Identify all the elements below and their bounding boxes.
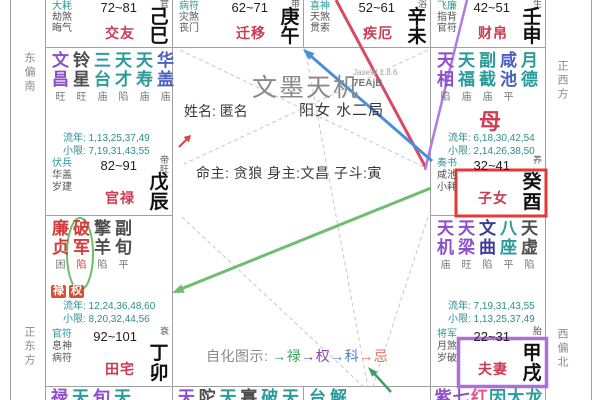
name-row: 姓名: 匿名	[184, 101, 248, 121]
minor-gods: 病符灾煞丧门	[179, 1, 199, 34]
star-name: 红	[470, 387, 488, 400]
palace-name: 疾厄	[363, 23, 393, 43]
partial-palace-col1[interactable]: 天陀天寡破天	[176, 387, 301, 400]
minor-gods: 大耗劫煞晦气	[52, 1, 72, 34]
name-label: 姓名:	[184, 103, 216, 119]
star-brightness: 陷	[71, 260, 92, 272]
age-range: 22~31	[473, 329, 510, 344]
star-天: 天	[218, 387, 239, 400]
main-stars-row: 天 机庙天 梁旺文 曲陷八 座平天 虚陷	[435, 219, 540, 272]
star-name: 副 截	[477, 51, 498, 89]
god-小耗: 小耗	[437, 182, 457, 194]
star-name: 七	[452, 387, 470, 400]
star-解: 解	[328, 387, 349, 400]
star-铃星: 铃 星旺	[71, 51, 92, 104]
sihua-badge-权: 权	[69, 285, 84, 298]
star-name: 破 军	[71, 219, 92, 257]
liunian-years: 流年: 1,13,25,37,49	[63, 132, 150, 145]
god-华盖: 华盖	[52, 170, 72, 182]
star-brightness	[519, 92, 540, 104]
palace-footer: 将军月煞岁破22~31夫妻胎甲 戌	[431, 327, 544, 385]
partial-stars-row: 台解	[307, 387, 428, 400]
star-name: 天 机	[435, 219, 456, 257]
star-name: 廉 贞	[50, 219, 71, 257]
year-limit-numbers: 流年: 6,18,30,42,54小限: 2,14,26,38,50	[448, 132, 535, 158]
star-副截: 副 截庙	[477, 51, 498, 104]
star-龙: 龙	[525, 387, 543, 400]
god-贯索: 贯索	[310, 23, 330, 34]
star-天寿: 天 寿庙	[134, 51, 155, 104]
star-name: 擎 羊	[92, 219, 113, 257]
palace-name: 田宅	[105, 359, 135, 379]
star-副旬: 副 旬平	[113, 219, 134, 272]
star-name: 因	[489, 387, 507, 400]
star-三台: 三 台庙	[92, 51, 113, 104]
god-岁破: 岁破	[437, 353, 457, 365]
palace-cell-fuqi[interactable]: 天 机庙天 梁旺文 曲陷八 座平天 虚陷流年: 7,19,31,43,55小限:…	[431, 216, 544, 385]
partial-stars-row: 禄天旬天	[49, 387, 170, 400]
partial-stars-row: 天陀天寡破天	[176, 387, 301, 400]
star-破军: 破 军陷	[71, 219, 92, 272]
god-病符: 病符	[179, 1, 199, 12]
small-red-line	[179, 138, 188, 147]
star-brightness: 旺	[71, 92, 92, 104]
star-月德: 月 德	[519, 51, 540, 104]
liunian-years: 流年: 6,18,30,42,54	[448, 132, 535, 145]
star-name: 华 盖	[155, 51, 176, 89]
partial-palace-col3[interactable]: 紫七红因大龙	[434, 387, 543, 400]
palace-footer: 官符息神病符92~101田宅衰丁 卯	[46, 327, 171, 385]
star-brightness: 陷	[477, 260, 498, 272]
star-name: 天	[176, 387, 197, 400]
palace-cell-guanlu[interactable]: 文 昌旺铃 星旺三 台庙天 才陷天 寿庙华 盖庙流年: 1,13,25,37,4…	[46, 48, 171, 214]
star-天机: 天 机庙	[435, 219, 456, 272]
star-文曲: 文 曲陷	[477, 219, 498, 272]
star-brightness: 庙	[134, 92, 155, 104]
green-arrowhead	[172, 284, 185, 293]
palace-cell-tianzhai[interactable]: 廉 贞困破 军陷擎 羊陷副 旬平禄权流年: 12,24,36,48,60小限: …	[46, 216, 171, 385]
main-stars-row: 文 昌旺铃 星旺三 台庙天 才陷天 寿庙华 盖庙	[50, 51, 176, 104]
stem-branch: 甲 戌	[522, 344, 542, 384]
star-name: 八 座	[498, 219, 519, 257]
minor-gods: 官符息神病符	[52, 329, 72, 365]
star-name: 文 曲	[477, 219, 498, 257]
star-天: 天	[70, 387, 91, 400]
star-brightness: 陷	[113, 92, 134, 104]
star-brightness: 陷	[519, 260, 540, 272]
partial-palace-col2[interactable]: 台解	[307, 387, 428, 400]
minor-gods: 将军月煞岁破	[437, 329, 457, 365]
age-range: 92~101	[93, 329, 137, 344]
star-name: 天 才	[113, 51, 134, 89]
star-name: 大	[507, 387, 525, 400]
star-华盖: 华 盖庙	[155, 51, 176, 104]
sihua-item: →权	[301, 348, 330, 364]
god-病符: 病符	[52, 353, 72, 365]
star-天福: 天 福庙	[456, 51, 477, 104]
sihua-legend: 自化图示: →禄→权→科→忌	[206, 346, 388, 366]
star-name: 咸 池	[498, 51, 519, 89]
star-name: 禄	[49, 387, 70, 400]
god-月煞: 月煞	[437, 341, 457, 353]
age-range: 42~51	[473, 0, 510, 15]
sihua-badges: 禄权	[51, 281, 87, 299]
star-寡: 寡	[238, 387, 259, 400]
palace-name: 子女	[478, 188, 508, 208]
god-飞廉: 飞廉	[437, 1, 457, 12]
god-大耗: 大耗	[52, 1, 72, 12]
star-name: 天	[280, 387, 301, 400]
star-陀: 陀	[197, 387, 218, 400]
star-brightness: 陷	[92, 260, 113, 272]
god-岁建: 岁建	[52, 182, 72, 194]
star-name: 天	[218, 387, 239, 400]
star-name: 文 昌	[50, 51, 71, 89]
star-name: 天 梁	[456, 219, 477, 257]
minor-gods: 飞廉指背官符	[437, 1, 457, 34]
watermark-version: JaseW 1.8.6	[353, 68, 397, 77]
star-name: 寡	[238, 387, 259, 400]
star-name: 台	[307, 387, 328, 400]
star-brightness: 平	[113, 260, 134, 272]
small-red-arrowhead	[184, 135, 192, 143]
star-name: 陀	[197, 387, 218, 400]
god-伏兵: 伏兵	[52, 158, 72, 170]
star-天梁: 天 梁旺	[456, 219, 477, 272]
sihua-item: →忌	[359, 348, 388, 364]
palace-footer: 伏兵华盖岁建82~91官禄帝 旺戊 辰	[46, 156, 171, 214]
main-stars-row: 天 相陷天 福庙副 截庙咸 池平月 德	[435, 51, 540, 104]
star-brightness: 庙	[435, 260, 456, 272]
name-value[interactable]: 匿名	[220, 103, 248, 119]
year-limit-numbers: 流年: 7,19,31,43,55小限: 1,13,25,37,49	[448, 300, 535, 326]
star-咸池: 咸 池平	[498, 51, 519, 104]
palace-cell-jie[interactable]: 喜神天煞贯索52~61疾厄浴辛 未	[304, 0, 429, 46]
changsheng-god: 胎	[532, 327, 543, 336]
direction-label-east: 正东方	[21, 326, 37, 368]
palace-name: 迁移	[236, 23, 266, 43]
year-limit-numbers: 流年: 12,24,36,48,60小限: 8,20,32,44,56	[63, 300, 155, 326]
stem-branch: 丁 卯	[149, 344, 169, 384]
age-range: 82~91	[100, 158, 137, 173]
direction-label-east-south: 东偏南	[21, 52, 37, 94]
stem-branch: 壬 申	[522, 8, 542, 46]
god-指背: 指背	[437, 12, 457, 23]
god-晦气: 晦气	[52, 23, 72, 34]
star-天: 天	[280, 387, 301, 400]
star-name: 天 相	[435, 51, 456, 89]
age-range: 72~81	[100, 0, 137, 15]
star-brightness: 庙	[92, 92, 113, 104]
sihua-badge-禄: 禄	[51, 285, 66, 298]
age-range: 32~41	[473, 158, 510, 173]
partial-stars-row: 紫七红因大龙	[434, 387, 543, 400]
ziwei-chart-app: 东偏南 正东方 正西方 西偏北 文墨天机 JaseW 1.8.6 7EAjB 姓…	[0, 0, 600, 400]
xiaoxian-years: 小限: 8,20,32,44,56	[63, 313, 155, 326]
star-brightness: 庙	[477, 92, 498, 104]
star-大: 大	[507, 387, 525, 400]
star-name: 旬	[91, 387, 112, 400]
palace-cell-caibo[interactable]: 飞廉指背官符42~51财帛生壬 申	[431, 0, 544, 46]
star-brightness: 平	[498, 92, 519, 104]
star-name: 龙	[525, 387, 543, 400]
sihua-item: →科	[330, 348, 359, 364]
star-name: 天	[112, 387, 133, 400]
star-name: 天 福	[456, 51, 477, 89]
god-咸池: 咸池	[437, 170, 457, 182]
liunian-years: 流年: 7,19,31,43,55	[448, 300, 535, 313]
star-name: 天 虚	[519, 219, 540, 257]
age-range: 62~71	[231, 0, 268, 15]
star-name: 天 寿	[134, 51, 155, 89]
star-brightness: 庙	[155, 92, 176, 104]
star-天: 天	[112, 387, 133, 400]
star-天才: 天 才陷	[113, 51, 134, 104]
palace-cell-qianyi[interactable]: 病符灾煞丧门62~71迁移带庚 午	[173, 0, 302, 46]
god-将军: 将军	[437, 329, 457, 341]
god-奏书: 奏书	[437, 158, 457, 170]
star-brightness: 旺	[50, 92, 71, 104]
star-brightness: 平	[498, 260, 519, 272]
god-官符: 官符	[52, 329, 72, 341]
star-name: 月 德	[519, 51, 540, 89]
god-灾煞: 灾煞	[179, 12, 199, 23]
palace-cell-jiaoyou[interactable]: 大耗劫煞晦气72~81交友官己 巳	[46, 0, 171, 46]
star-name: 铃 星	[71, 51, 92, 89]
star-台: 台	[307, 387, 328, 400]
star-八座: 八 座平	[498, 219, 519, 272]
minor-gods: 伏兵华盖岁建	[52, 158, 72, 194]
xiaoxian-years: 小限: 1,13,25,37,49	[448, 313, 535, 326]
sihua-item: →禄	[272, 348, 301, 364]
year-limit-numbers: 流年: 1,13,25,37,49小限: 7,19,31,43,55	[63, 132, 150, 158]
blue-arrowhead	[303, 49, 315, 60]
star-破: 破	[259, 387, 280, 400]
palace-name: 夫妻	[478, 359, 508, 379]
direction-label-west-north: 西偏北	[554, 328, 570, 370]
minor-gods: 喜神天煞贯索	[310, 1, 330, 34]
star-brightness: 困	[50, 260, 71, 272]
star-天虚: 天 虚陷	[519, 219, 540, 272]
star-天相: 天 相陷	[435, 51, 456, 104]
star-廉贞: 廉 贞困	[50, 219, 71, 272]
god-丧门: 丧门	[179, 23, 199, 34]
changsheng-god: 衰	[159, 327, 170, 336]
ming-shen-line: 命主: 贪狼 身主:文昌 子斗:寅	[196, 163, 382, 183]
god-天煞: 天煞	[310, 12, 330, 23]
liunian-years: 流年: 12,24,36,48,60	[63, 300, 155, 313]
star-name: 三 台	[92, 51, 113, 89]
star-红: 红	[470, 387, 488, 400]
palace-footer: 奏书咸池小耗32~41子女养癸 酉	[431, 156, 544, 214]
god-官符: 官符	[437, 23, 457, 34]
stem-branch: 癸 酉	[522, 173, 542, 213]
star-擎羊: 擎 羊陷	[92, 219, 113, 272]
palace-name: 官禄	[105, 188, 135, 208]
gender-bureau: 阳女 水二局	[299, 99, 384, 120]
stem-branch: 庚 午	[280, 8, 300, 46]
star-七: 七	[452, 387, 470, 400]
palace-name: 交友	[105, 23, 135, 43]
star-name: 破	[259, 387, 280, 400]
minor-gods: 奏书咸池小耗	[437, 158, 457, 194]
green-flying-line	[176, 188, 431, 291]
sihua-legend-label: 自化图示:	[206, 348, 268, 364]
stem-branch: 戊 辰	[149, 173, 169, 213]
god-息神: 息神	[52, 341, 72, 353]
age-range: 52~61	[358, 0, 395, 15]
star-brightness: 庙	[456, 92, 477, 104]
watermark-code: 7EAjB	[353, 78, 382, 89]
direction-label-west: 正西方	[554, 60, 570, 102]
star-name: 解	[328, 387, 349, 400]
stem-branch: 辛 未	[407, 8, 427, 46]
star-天: 天	[176, 387, 197, 400]
star-紫: 紫	[434, 387, 452, 400]
main-stars-row: 廉 贞困破 军陷擎 羊陷副 旬平	[50, 219, 134, 272]
palace-name: 财帛	[478, 23, 508, 43]
star-brightness: 旺	[456, 260, 477, 272]
god-劫煞: 劫煞	[52, 12, 72, 23]
palace-cell-zinv[interactable]: 天 相陷天 福庙副 截庙咸 池平月 德 母流年: 6,18,30,42,54小限…	[431, 48, 544, 214]
star-name: 紫	[434, 387, 452, 400]
star-name: 副 旬	[113, 219, 134, 257]
star-brightness: 陷	[435, 92, 456, 104]
small-green-arrowhead	[368, 367, 377, 377]
star-文昌: 文 昌旺	[50, 51, 71, 104]
partial-palace-col0[interactable]: 禄天旬天	[49, 387, 170, 400]
god-喜神: 喜神	[310, 1, 330, 12]
star-因: 因	[489, 387, 507, 400]
star-旬: 旬	[91, 387, 112, 400]
star-禄: 禄	[49, 387, 70, 400]
changsheng-god: 养	[532, 156, 543, 165]
stem-branch: 己 巳	[149, 8, 169, 46]
sihua-arrows	[172, 0, 467, 392]
star-name: 天	[70, 387, 91, 400]
